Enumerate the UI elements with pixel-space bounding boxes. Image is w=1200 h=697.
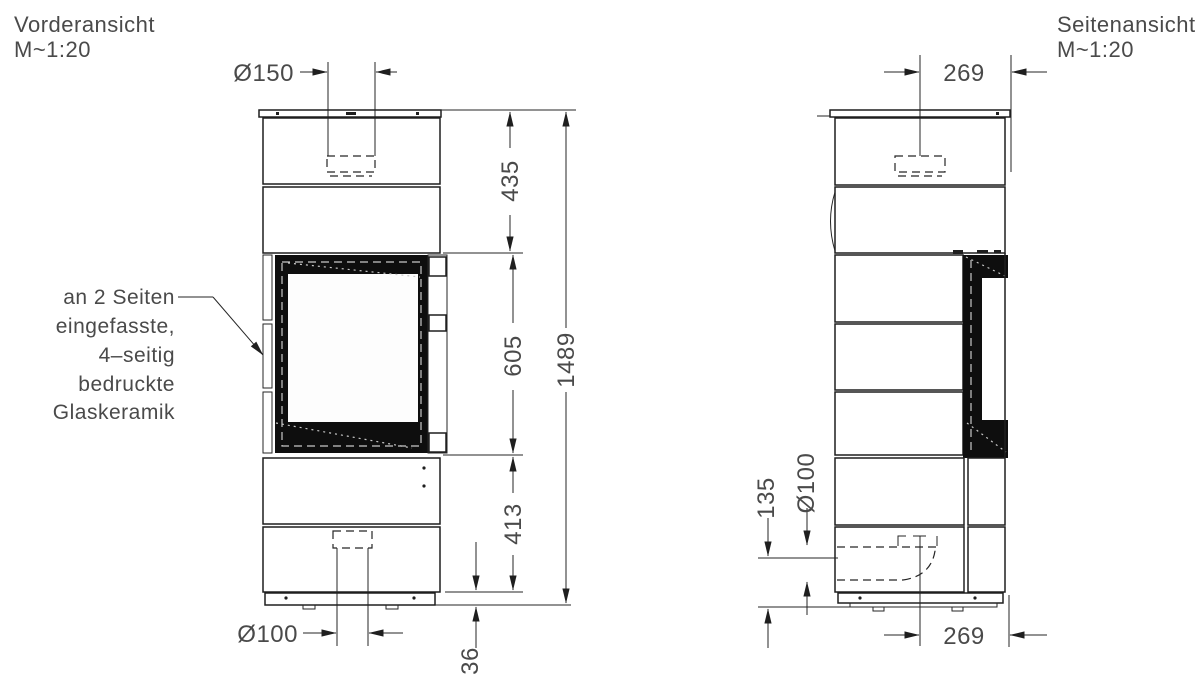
glass-strip [963, 278, 982, 420]
plinth-dot [284, 596, 287, 599]
glass-bottom-wedge [963, 420, 1008, 458]
front-view: Vorderansicht M~1:20 Ø150 [14, 12, 580, 675]
leader-arrow [213, 297, 263, 355]
top-plate-mark [346, 112, 356, 115]
dim-base-height-label: 36 [457, 647, 484, 675]
top-plate-mark [416, 112, 419, 115]
flue-collar-hidden [327, 156, 375, 172]
front-view-title: Vorderansicht [14, 12, 155, 37]
technical-drawing-page: Vorderansicht M~1:20 Ø150 [0, 0, 1200, 697]
tile-row [263, 458, 440, 524]
tile-row [835, 324, 963, 390]
annotation-line: bedruckte [78, 373, 175, 396]
frame-tick [977, 250, 988, 253]
plinth-dot [412, 596, 415, 599]
front-frame-panel [968, 458, 1005, 525]
foot [873, 607, 884, 611]
hinge-block [429, 315, 446, 331]
plinth-dot [973, 596, 976, 599]
foot [952, 607, 963, 611]
duct-collar [898, 536, 937, 546]
glass-top-wedge [963, 255, 1008, 278]
dim-top-section: 435 [497, 112, 524, 251]
side-view-title: Seitenansicht [1057, 12, 1196, 37]
side-tile-strip [263, 324, 272, 388]
hinge-pin-dot [422, 466, 425, 469]
dim-window-section: 605 [500, 255, 527, 453]
front-frame-panel [968, 527, 1005, 592]
annotation-line: 4–seitig [99, 344, 175, 367]
side-tile-strip [263, 255, 272, 320]
dim-flue-diameter: Ø150 [233, 60, 397, 156]
duct-elbow [903, 547, 935, 580]
tile-row [263, 118, 440, 184]
door-hinge-strip [428, 255, 447, 453]
glass-annotation: an 2 Seiten eingefasste, 4–seitig bedruc… [53, 286, 263, 424]
annotation-line: Glaskeramik [53, 401, 175, 424]
dim-inlet-pipe-diameter: Ø100 [793, 453, 820, 615]
dim-top-section-label: 435 [497, 160, 524, 202]
tile-row [835, 187, 1005, 253]
plinth [265, 593, 435, 605]
flue-collar-hidden [895, 156, 945, 172]
tile-row [263, 187, 440, 253]
frame-tick [994, 250, 1001, 253]
hinge-block [429, 257, 446, 276]
dim-inlet-axis-label: 135 [753, 477, 780, 519]
dim-air-inlet-label: Ø100 [237, 621, 298, 648]
dim-flue-diameter-label: Ø150 [233, 60, 294, 87]
hinge-block [429, 433, 446, 452]
tile-row [835, 458, 964, 525]
annotation-line: an 2 Seiten [63, 286, 175, 309]
dim-air-inlet-diameter: Ø100 [237, 621, 403, 648]
dim-total-height: 1489 [553, 112, 580, 603]
tile-row [263, 527, 440, 592]
top-plate-mark [996, 112, 999, 115]
tile-row [835, 527, 964, 592]
side-view: Seitenansicht M~1:20 269 [753, 12, 1196, 650]
fire-window [263, 255, 447, 453]
air-inlet-hidden [333, 531, 372, 548]
dim-flue-center-to-front: 269 [884, 55, 1047, 172]
dim-inlet-center-label: 269 [943, 623, 985, 650]
stove-technical-drawing: Vorderansicht M~1:20 Ø150 [0, 0, 1200, 697]
plinth-dot [858, 596, 861, 599]
tile-row [835, 255, 963, 322]
annotation-line: eingefasste, [56, 315, 175, 338]
top-plate-mark [276, 112, 279, 115]
side-glass [953, 250, 1008, 458]
dim-flue-center-label: 269 [943, 60, 985, 87]
dim-inlet-pipe-label: Ø100 [793, 453, 820, 514]
tile-row [835, 392, 963, 455]
dim-window-section-label: 605 [500, 335, 527, 377]
dim-lower-section: 413 [500, 457, 527, 590]
glass-pane [288, 274, 418, 422]
air-duct-hidden [837, 536, 937, 646]
side-view-scale: M~1:20 [1057, 37, 1134, 62]
dim-lower-section-label: 413 [500, 503, 527, 545]
hinge-pin-dot [422, 484, 425, 487]
dim-total-height-label: 1489 [553, 332, 580, 387]
side-tile-strip [263, 392, 272, 453]
frame-tick [953, 250, 963, 254]
front-view-scale: M~1:20 [14, 37, 91, 62]
dim-base-height: 36 [457, 542, 484, 675]
